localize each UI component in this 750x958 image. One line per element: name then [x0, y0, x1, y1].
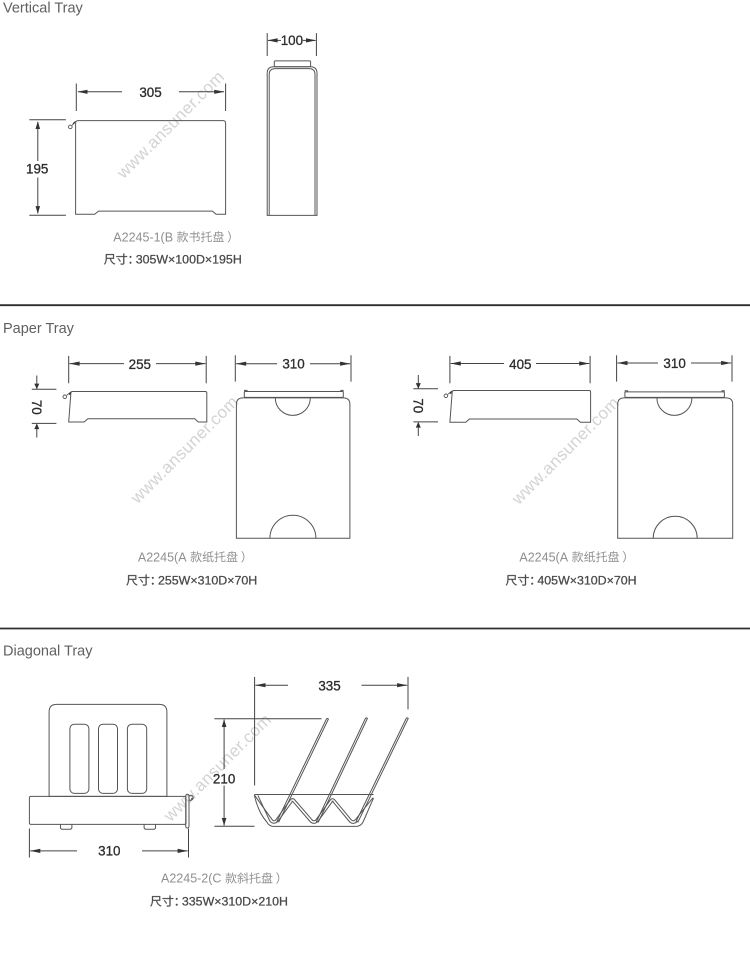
svg-text:310: 310 — [98, 844, 120, 859]
svg-text:195: 195 — [26, 162, 48, 177]
svg-text:405W×310D×70H: 405W×310D×70H — [537, 574, 636, 588]
svg-text:70: 70 — [411, 398, 426, 413]
svg-text:A2245-2(C: A2245-2(C — [161, 872, 225, 886]
svg-text:A2245(A: A2245(A — [519, 550, 570, 564]
svg-text:405: 405 — [509, 357, 531, 372]
svg-text:335: 335 — [318, 678, 340, 693]
svg-text:210: 210 — [213, 771, 235, 786]
svg-text:Paper Tray: Paper Tray — [3, 321, 75, 337]
svg-text:Diagonal Tray: Diagonal Tray — [3, 644, 93, 660]
svg-text:310: 310 — [663, 356, 685, 371]
svg-text:335W×310D×210H: 335W×310D×210H — [182, 895, 288, 909]
svg-text:Vertical Tray: Vertical Tray — [3, 1, 84, 17]
svg-text:310: 310 — [282, 356, 304, 371]
svg-text:A2245-1(B: A2245-1(B — [113, 230, 176, 244]
svg-text:A2245(A: A2245(A — [138, 550, 189, 564]
svg-text:305W×100D×195H: 305W×100D×195H — [136, 253, 242, 267]
svg-text:255W×310D×70H: 255W×310D×70H — [158, 574, 257, 588]
svg-text:100: 100 — [281, 33, 303, 48]
svg-text:70: 70 — [29, 400, 44, 415]
svg-text:305: 305 — [139, 85, 161, 100]
svg-text:255: 255 — [129, 357, 151, 372]
